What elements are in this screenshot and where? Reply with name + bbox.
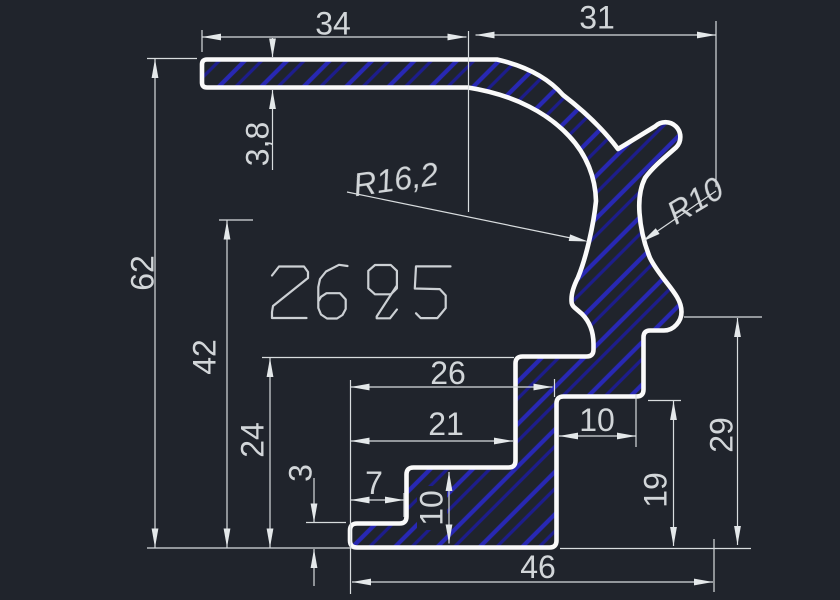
svg-text:3,8: 3,8 [240,122,276,166]
svg-text:24: 24 [235,422,271,458]
svg-text:46: 46 [520,549,556,585]
svg-text:26: 26 [430,355,466,391]
svg-text:34: 34 [315,6,351,42]
svg-text:21: 21 [428,406,464,442]
svg-text:62: 62 [125,255,161,291]
svg-text:31: 31 [579,0,615,36]
svg-text:3: 3 [283,464,319,482]
svg-text:19: 19 [638,472,674,508]
svg-text:42: 42 [187,339,223,375]
svg-text:29: 29 [704,417,740,453]
svg-text:7: 7 [365,465,383,501]
svg-text:10: 10 [414,490,450,526]
svg-text:10: 10 [579,402,615,438]
